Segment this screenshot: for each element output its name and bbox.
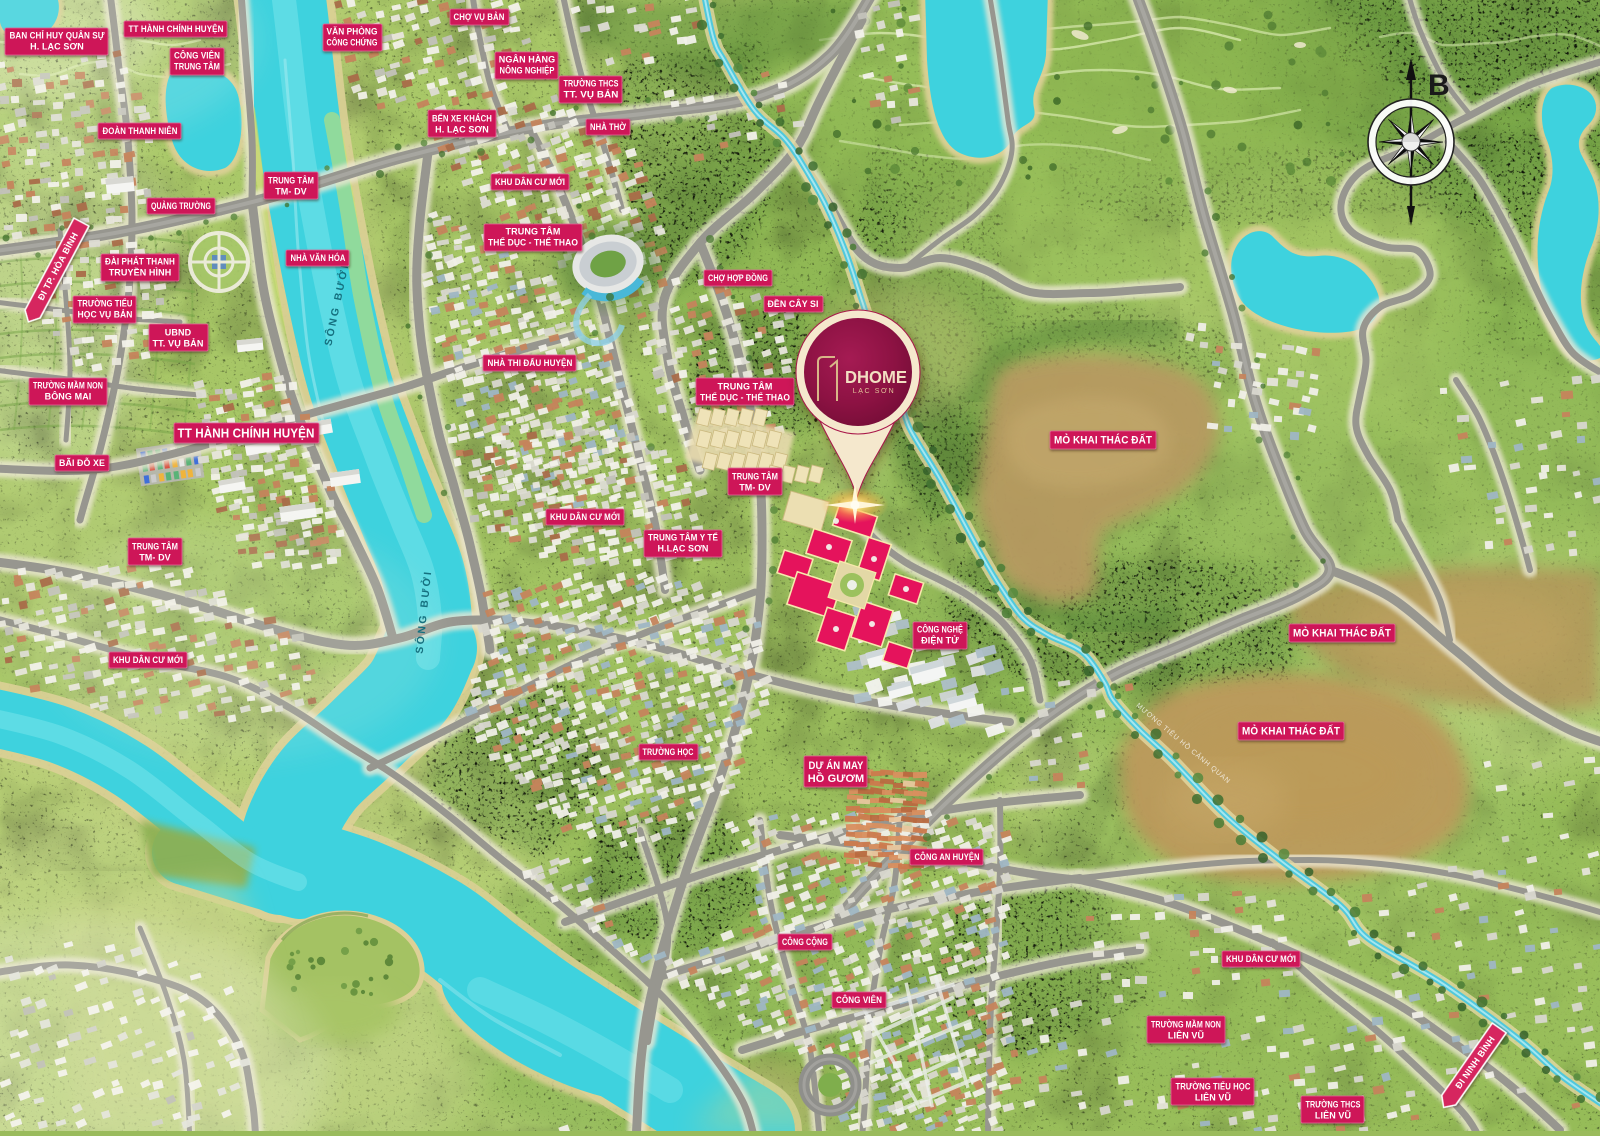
svg-text:BAN CHỈ HUY QUÂN SỰ: BAN CHỈ HUY QUÂN SỰ <box>10 30 105 41</box>
svg-text:CHỢ HỢP ĐỒNG: CHỢ HỢP ĐỒNG <box>708 272 768 283</box>
svg-text:MỎ KHAI THÁC ĐẤT: MỎ KHAI THÁC ĐẤT <box>1054 434 1152 447</box>
svg-text:TRUNG TÂM: TRUNG TÂM <box>174 61 220 72</box>
svg-text:CÔNG VIÊN: CÔNG VIÊN <box>836 994 882 1005</box>
svg-text:TRƯỜNG TIỂU HỌC: TRƯỜNG TIỂU HỌC <box>1176 1081 1251 1092</box>
svg-text:HỌC VỤ BẢN: HỌC VỤ BẢN <box>78 309 133 320</box>
svg-text:KHU DÂN CƯ MỚI: KHU DÂN CƯ MỚI <box>1226 953 1296 964</box>
svg-text:TT HÀNH CHÍNH HUYỆN: TT HÀNH CHÍNH HUYỆN <box>129 23 224 34</box>
svg-text:MỎ KHAI THÁC ĐẤT: MỎ KHAI THÁC ĐẤT <box>1293 627 1391 640</box>
svg-text:TRƯỜNG HỌC: TRƯỜNG HỌC <box>643 746 694 757</box>
svg-text:DHOME: DHOME <box>845 367 907 387</box>
svg-text:TT HÀNH CHÍNH HUYỆN: TT HÀNH CHÍNH HUYỆN <box>178 425 315 440</box>
svg-text:CÔNG NGHỆ: CÔNG NGHỆ <box>917 624 963 635</box>
svg-text:ĐOÀN THANH NIÊN: ĐOÀN THANH NIÊN <box>103 125 178 136</box>
svg-text:TM- DV: TM- DV <box>739 483 771 493</box>
svg-text:CÔNG VIÊN: CÔNG VIÊN <box>174 50 220 61</box>
svg-text:TRUNG TÂM: TRUNG TÂM <box>268 175 314 186</box>
svg-text:NHÀ VĂN HÓA: NHÀ VĂN HÓA <box>291 252 346 263</box>
svg-text:TT. VỤ BẢN: TT. VỤ BẢN <box>564 89 619 100</box>
svg-text:H. LẠC SƠN: H. LẠC SƠN <box>435 125 489 135</box>
svg-text:LIÊN VŨ: LIÊN VŨ <box>1168 1030 1204 1041</box>
svg-text:TRUNG TÂM: TRUNG TÂM <box>718 381 773 392</box>
svg-text:TRUYỀN HÌNH: TRUYỀN HÌNH <box>109 268 172 278</box>
svg-text:H. LẠC SƠN: H. LẠC SƠN <box>30 42 84 52</box>
svg-text:DỰ ÁN MAY: DỰ ÁN MAY <box>809 759 864 772</box>
svg-text:NÔNG NGHIỆP: NÔNG NGHIỆP <box>500 65 555 76</box>
svg-text:QUẢNG TRƯỜNG: QUẢNG TRƯỜNG <box>151 200 211 211</box>
svg-text:THỂ DỤC - THỂ THAO: THỂ DỤC - THỂ THAO <box>700 392 790 403</box>
svg-text:TRUNG TÂM Y TẾ: TRUNG TÂM Y TẾ <box>648 532 718 543</box>
svg-text:THỂ DỤC - THỂ THAO: THỂ DỤC - THỂ THAO <box>488 237 578 248</box>
svg-text:ĐIỆN TỬ: ĐIỆN TỬ <box>921 635 959 646</box>
svg-text:VĂN PHÒNG: VĂN PHÒNG <box>327 26 378 37</box>
svg-text:CHỢ VỤ BẢN: CHỢ VỤ BẢN <box>454 11 505 22</box>
svg-text:TT. VỤ BẢN: TT. VỤ BẢN <box>153 338 204 349</box>
svg-text:HỒ GƯƠM: HỒ GƯƠM <box>808 772 864 785</box>
svg-text:B: B <box>1428 69 1450 102</box>
svg-text:H.LẠC SƠN: H.LẠC SƠN <box>657 544 708 554</box>
svg-text:LIÊN VŨ: LIÊN VŨ <box>1195 1092 1231 1103</box>
svg-text:TRUNG TÂM: TRUNG TÂM <box>732 471 778 482</box>
svg-text:MỎ KHAI THÁC ĐẤT: MỎ KHAI THÁC ĐẤT <box>1242 725 1340 738</box>
svg-text:TRƯỜNG TIỂU: TRƯỜNG TIỂU <box>78 298 133 309</box>
svg-text:TM- DV: TM- DV <box>139 553 171 563</box>
svg-text:CÔNG CỘNG: CÔNG CỘNG <box>782 936 828 947</box>
svg-text:NHÀ THỜ: NHÀ THỜ <box>590 121 626 132</box>
svg-text:TRƯỜNG MẦM NON: TRƯỜNG MẦM NON <box>1151 1019 1221 1030</box>
svg-text:ĐỀN CÂY SI: ĐỀN CÂY SI <box>768 298 819 309</box>
svg-text:TRƯỜNG THCS: TRƯỜNG THCS <box>564 78 619 89</box>
svg-text:TRUNG TÂM: TRUNG TÂM <box>506 226 561 237</box>
svg-text:CÔNG AN HUYỆN: CÔNG AN HUYỆN <box>915 851 980 862</box>
svg-text:KHU DÂN CƯ MỚI: KHU DÂN CƯ MỚI <box>550 511 620 522</box>
svg-text:BÔNG MAI: BÔNG MAI <box>45 391 92 402</box>
svg-text:LẠC SƠN: LẠC SƠN <box>853 388 896 395</box>
svg-text:TRƯỜNG THCS: TRƯỜNG THCS <box>1306 1099 1361 1110</box>
svg-text:BÃI ĐỖ XE: BÃI ĐỖ XE <box>59 457 105 468</box>
svg-text:CÔNG CHỨNG: CÔNG CHỨNG <box>327 37 378 48</box>
svg-text:NGÂN HÀNG: NGÂN HÀNG <box>499 54 555 65</box>
svg-text:BẾN XE KHÁCH: BẾN XE KHÁCH <box>432 114 492 124</box>
svg-text:KHU DÂN CƯ MỚI: KHU DÂN CƯ MỚI <box>495 176 565 187</box>
svg-text:TRUNG TÂM: TRUNG TÂM <box>132 541 178 552</box>
svg-text:UBND: UBND <box>165 328 192 338</box>
svg-text:NHÀ THI ĐẤU HUYỆN: NHÀ THI ĐẤU HUYỆN <box>488 357 573 368</box>
svg-text:ĐÀI PHÁT THANH: ĐÀI PHÁT THANH <box>105 257 175 267</box>
svg-text:TM- DV: TM- DV <box>275 187 307 197</box>
svg-text:TRƯỜNG MẦM NON: TRƯỜNG MẦM NON <box>33 380 103 391</box>
svg-text:KHU DÂN CƯ MỚI: KHU DÂN CƯ MỚI <box>113 654 183 665</box>
svg-text:LIÊN VŨ: LIÊN VŨ <box>1315 1110 1351 1121</box>
